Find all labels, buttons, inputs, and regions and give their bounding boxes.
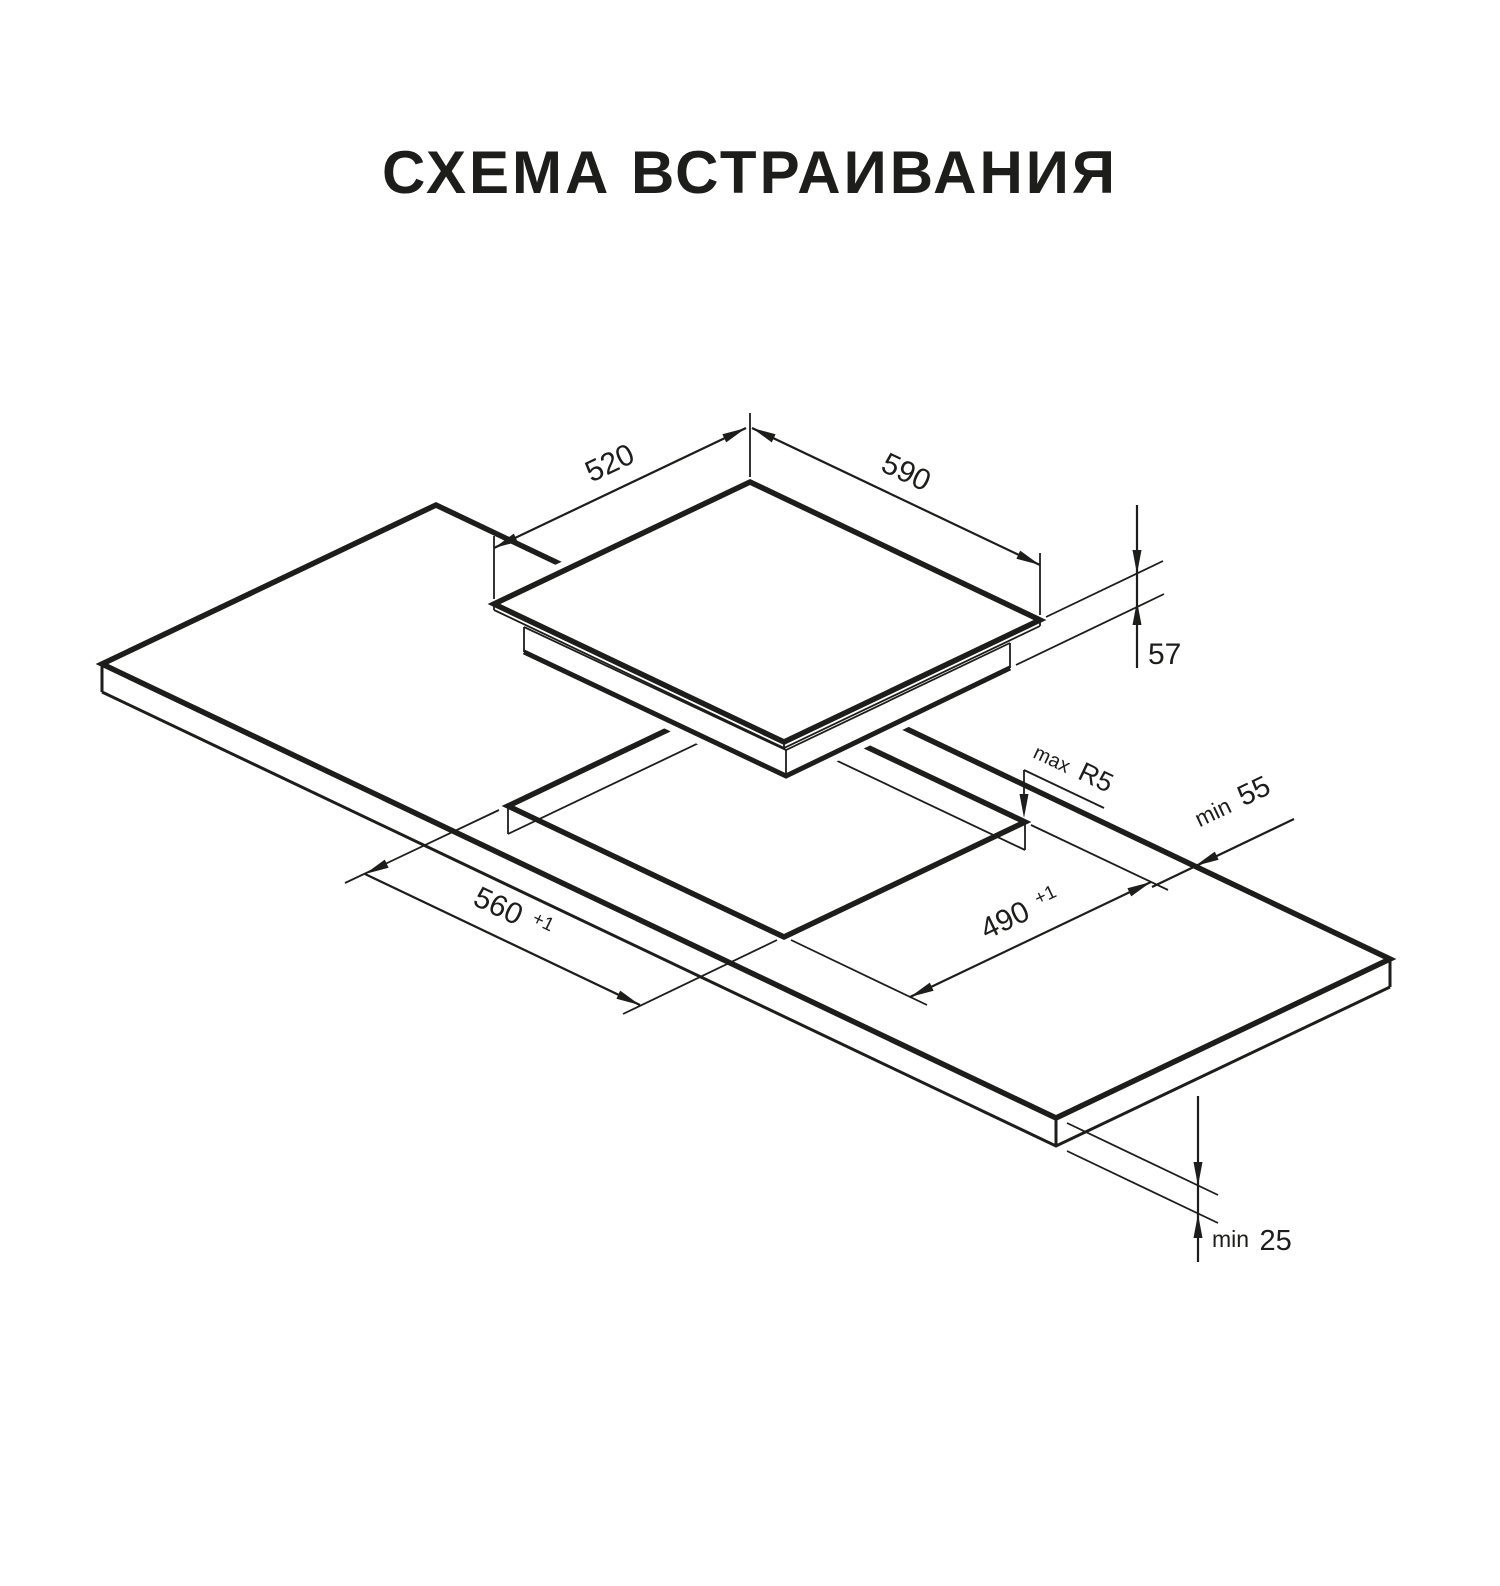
cooktop-height-label: 57 — [1148, 638, 1181, 671]
installation-diagram: 560 +1 490 +1 max R5 — [0, 0, 1500, 1586]
rear-clearance-label: min 55 — [1189, 770, 1276, 834]
countertop-thickness-label: min 25 — [1212, 1225, 1292, 1257]
page: СХЕМА ВСТРАИВАНИЯ — [0, 0, 1500, 1586]
cooktop-depth-label: 520 — [580, 438, 639, 489]
corner-radius-label: max R5 — [1029, 735, 1118, 798]
